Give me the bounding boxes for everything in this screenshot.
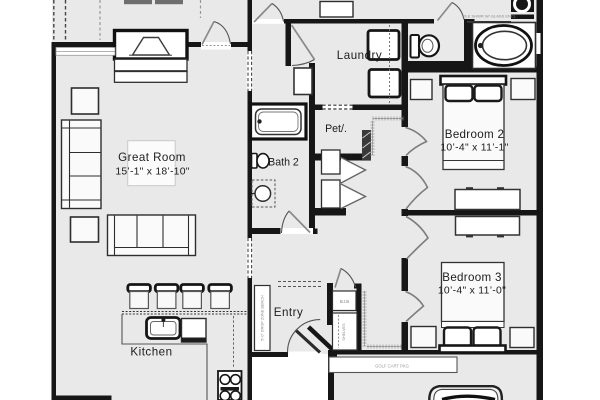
svg-text:Laundry: Laundry xyxy=(337,49,382,62)
svg-text:Great Room: Great Room xyxy=(118,151,186,164)
svg-text:15’-1" x 18’-10": 15’-1" x 18’-10" xyxy=(115,167,189,178)
svg-text:Kitchen: Kitchen xyxy=(130,346,172,359)
svg-text:Entry: Entry xyxy=(274,306,304,319)
svg-text:B.I.B: B.I.B xyxy=(340,299,349,304)
svg-text:10’-4" x 11’-0": 10’-4" x 11’-0" xyxy=(438,286,506,297)
svg-text:Bedroom 2: Bedroom 2 xyxy=(445,128,504,141)
svg-text:Pet/.: Pet/. xyxy=(325,123,347,135)
svg-text:5’-0" DROP ZONE BENCH: 5’-0" DROP ZONE BENCH xyxy=(261,295,265,341)
svg-text:GOLF CART PKG: GOLF CART PKG xyxy=(375,364,409,369)
svg-text:TILE SHWR W/ GLASS ENCL: TILE SHWR W/ GLASS ENCL xyxy=(462,14,517,19)
svg-text:SHELVES: SHELVES xyxy=(342,323,346,341)
svg-text:10’-4" x 11’-1": 10’-4" x 11’-1" xyxy=(440,143,508,154)
svg-text:Bath 2: Bath 2 xyxy=(268,157,299,169)
svg-text:Bedroom 3: Bedroom 3 xyxy=(442,271,501,284)
